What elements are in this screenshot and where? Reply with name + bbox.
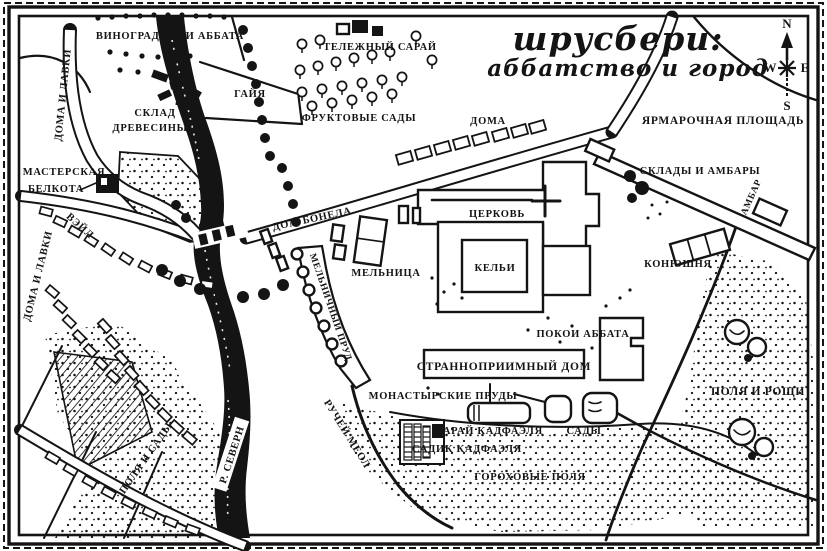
label-cells: КЕЛЬИ xyxy=(475,263,516,274)
label-pea-fields: ГОРОХОВЫЕ ПОЛЯ xyxy=(474,472,585,483)
compass-south: S xyxy=(783,98,790,113)
map-page: N W E S шрусбери: аббатство и город ВИНО… xyxy=(0,0,827,551)
label-gardens: САДЫ xyxy=(567,426,602,437)
label-church: ЦЕРКОВЬ xyxy=(469,209,525,220)
label-abbots-vineyards: ВИНОГРАДНИКИ АББАТА xyxy=(96,31,244,42)
label-warehouses-and-barns: СКЛАДЫ И АМБАРЫ xyxy=(640,166,761,177)
label-belcote-workshop-1: МАСТЕРСКАЯ xyxy=(23,167,105,178)
compass-east: E xyxy=(801,60,810,75)
label-houses: ДОМА xyxy=(470,116,506,127)
label-stables: КОНЮШНЯ xyxy=(644,259,712,270)
label-abbey-ponds: МОНАСТЫРСКИЕ ПРУДЫ xyxy=(369,391,518,402)
compass-north: N xyxy=(782,16,792,31)
label-timber-yard-2: ДРЕВЕСИНЫ xyxy=(112,123,187,134)
label-fairground: ЯРМАРОЧНАЯ ПЛОЩАДЬ xyxy=(642,115,804,127)
label-fruit-orchards: ФРУКТОВЫЕ САДЫ xyxy=(302,113,416,124)
label-cadfael-garden: САДИК КАДФАЭЛЯ xyxy=(412,444,522,455)
label-mill: МЕЛЬНИЦА xyxy=(351,268,420,279)
label-cadfael-shed: САРАЙ КАДФАЭЛЯ xyxy=(435,425,543,437)
label-guest-hall: СТРАННОПРИИМНЫЙ ДОМ xyxy=(417,359,591,373)
label-timber-yard-1: СКЛАД xyxy=(134,108,175,119)
shrewsbury-abbey-map: N W E S шрусбери: аббатство и город ВИНО… xyxy=(0,0,827,551)
label-fields-and-groves: ПОЛЯ И РОЩИ xyxy=(711,386,805,398)
label-cart-shed: ТЕЛЕЖНЫЙ САРАЙ xyxy=(323,41,437,53)
label-abbots-lodging: ПОКОИ АББАТА xyxy=(536,329,629,340)
map-title-line1: шрусбери: xyxy=(513,19,724,58)
abbots-lodging-building xyxy=(600,318,643,380)
label-belcote-workshop-2: БЕЛКОТА xyxy=(28,184,84,195)
map-title-line2: аббатство и город xyxy=(487,55,769,82)
label-gaye: ГАЙЯ xyxy=(234,88,266,100)
